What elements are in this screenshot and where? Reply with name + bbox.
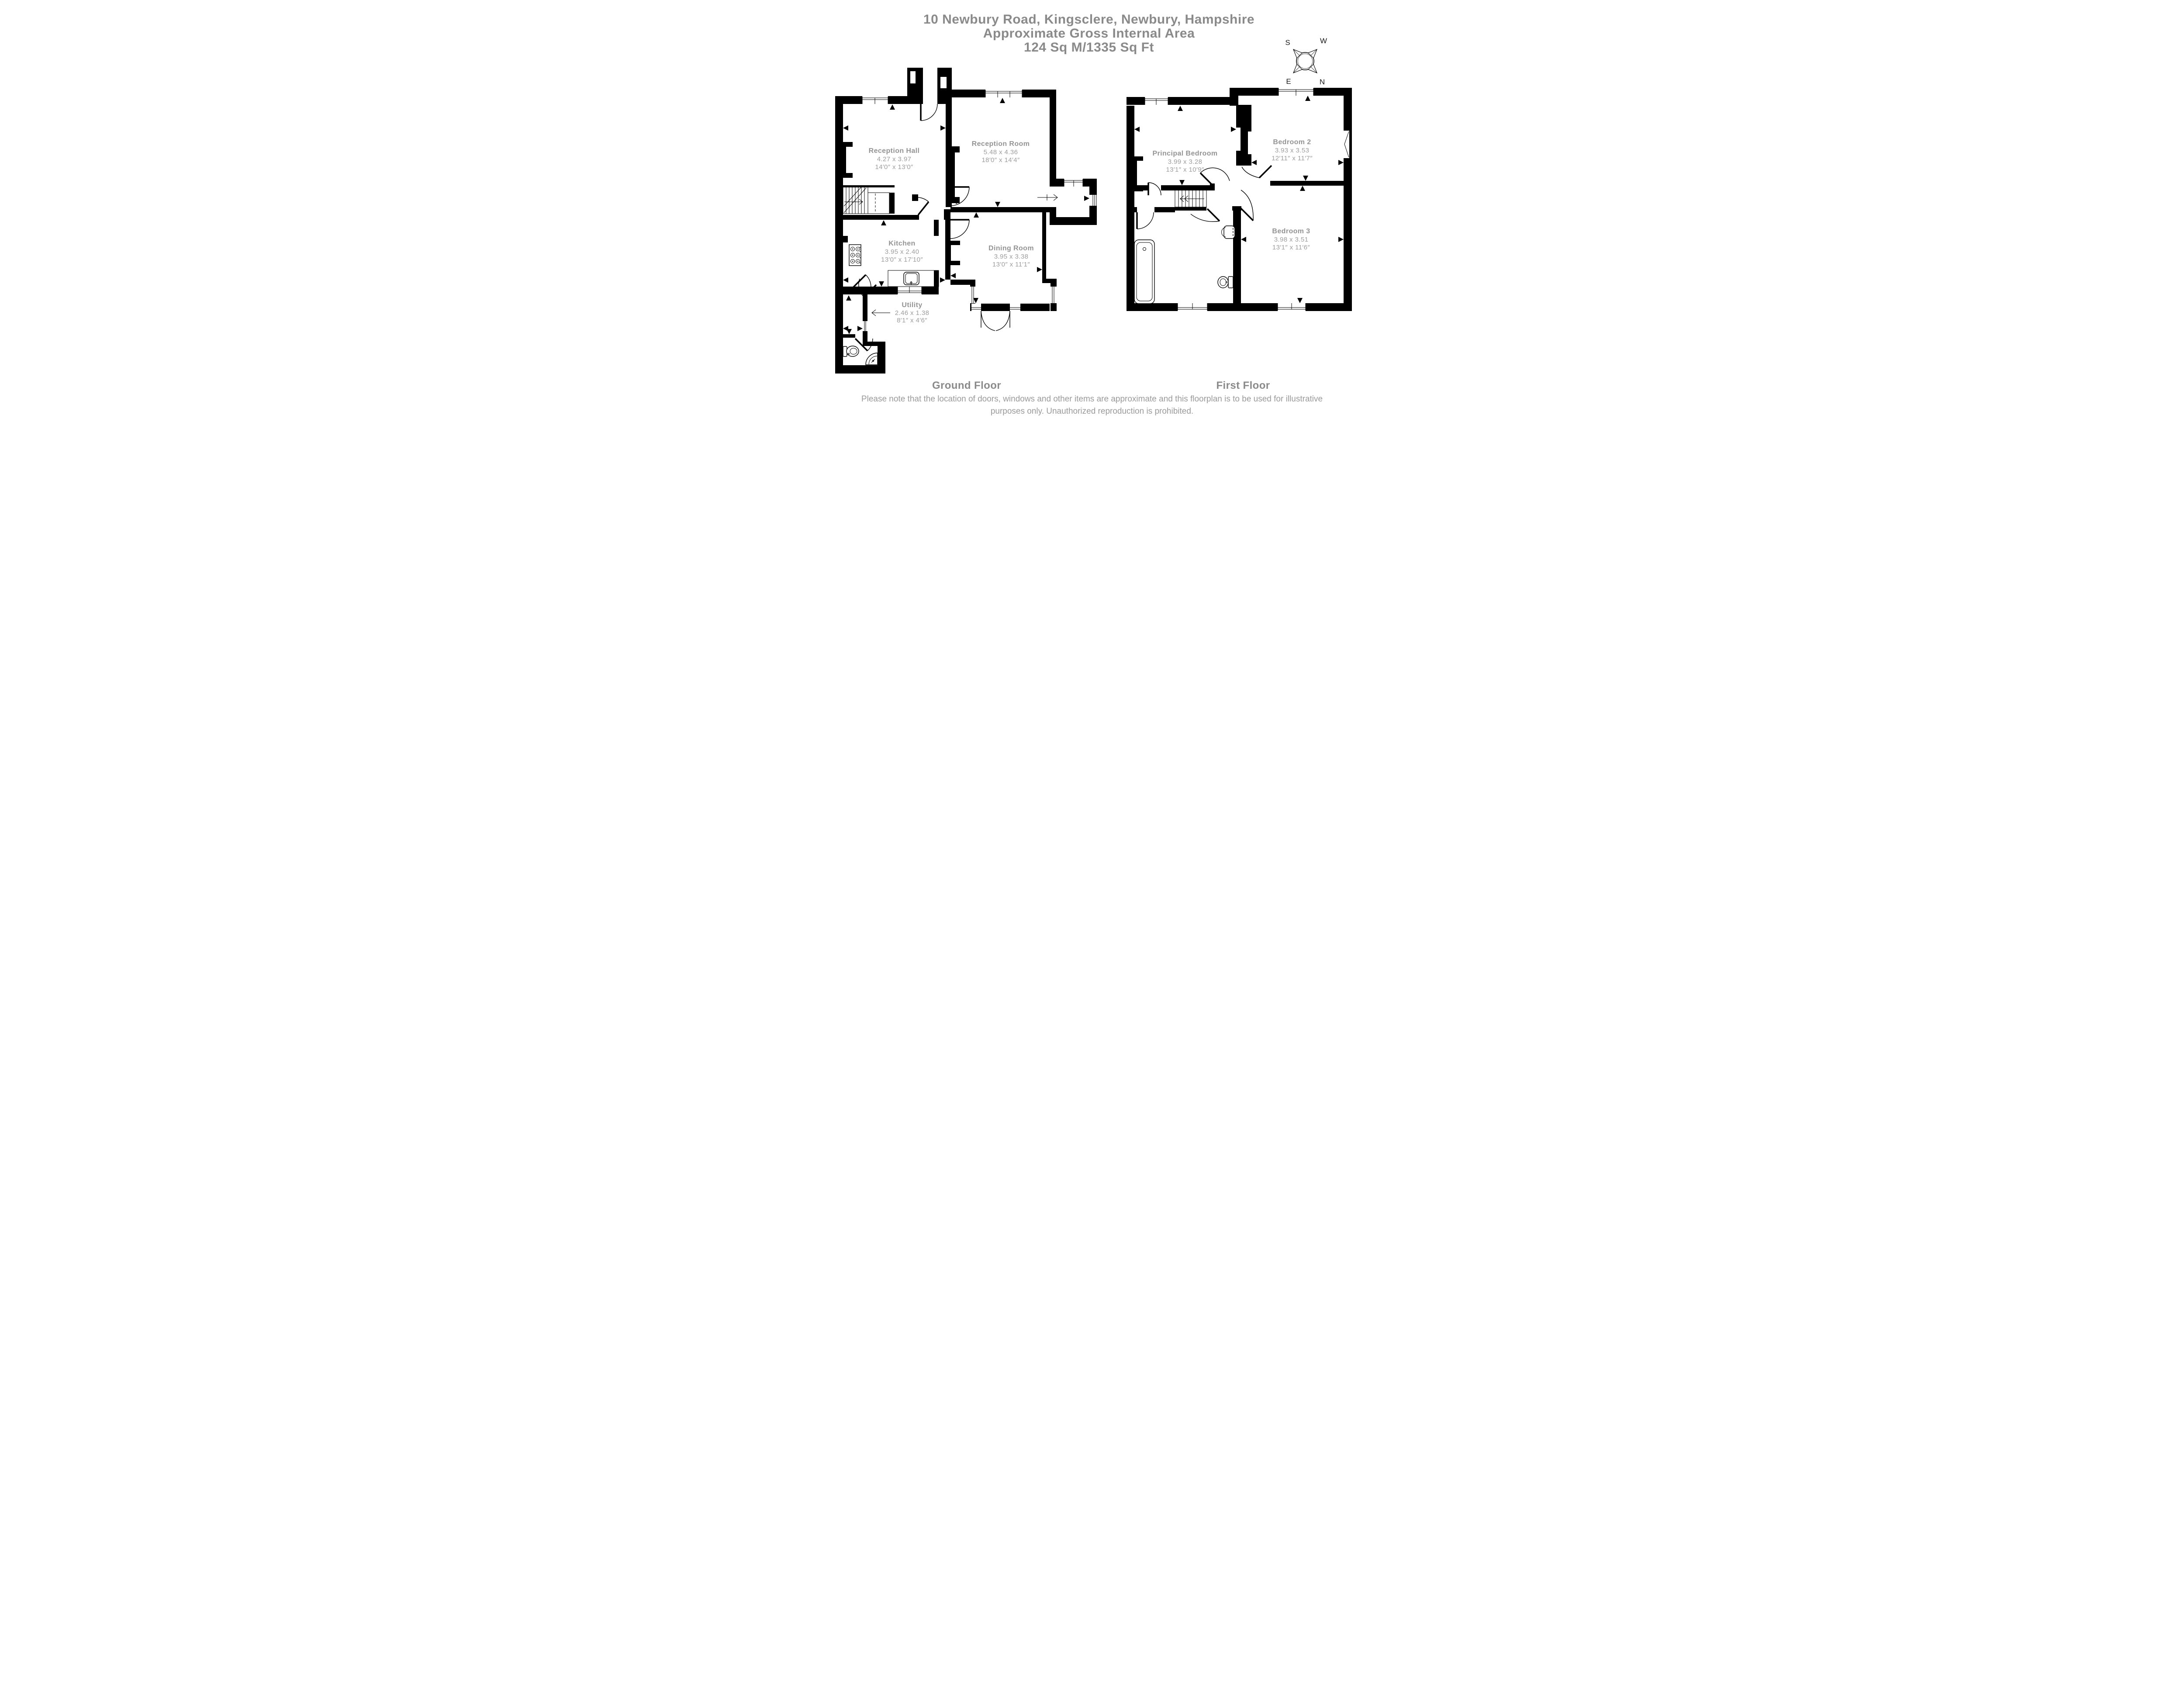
kitchen-sink-icon: [888, 270, 939, 287]
room-metric: 4.27 x 3.97: [877, 156, 912, 163]
door-landing-1: [1200, 168, 1230, 185]
room-reception-hall: Reception Hall 4.27 x 3.97 14′0″ x 13′0″: [869, 147, 920, 171]
room-label: Bedroom 3: [1272, 228, 1310, 235]
room-metric: 3.95 x 2.40: [885, 248, 919, 256]
room-label: Utility: [902, 301, 922, 309]
floorplan-canvas: 10 Newbury Road, Kingsclere, Newbury, Ha…: [819, 0, 1365, 422]
bathtub-icon: [1134, 240, 1154, 304]
stove-icon: [849, 245, 861, 266]
room-metric: 3.99 x 3.28: [1168, 158, 1203, 166]
title-area: 124 Sq M/1335 Sq Ft: [1024, 40, 1154, 55]
ground-floor-plan: Reception Hall 4.27 x 3.97 14′0″ x 13′0″…: [835, 68, 1097, 374]
door-bedroom2: [1242, 166, 1272, 178]
room-utility: Utility 2.46 x 1.38 8′1″ x 4′6″: [895, 301, 930, 324]
window-kitchen-bottom: [898, 287, 922, 294]
room-imperial: 8′1″ x 4′6″: [897, 317, 927, 324]
corner-basin-icon: [866, 353, 878, 365]
window-bay-bottom-left: [971, 304, 981, 311]
cupboard-under-stairs: [868, 193, 889, 214]
disclaimer-line-1: Please note that the location of doors, …: [861, 394, 1323, 404]
door-bathroom: [1137, 212, 1154, 229]
stairs-first-floor-icon: [1175, 190, 1206, 207]
title-subtitle: Approximate Gross Internal Area: [983, 26, 1195, 41]
room-imperial: 13′0″ x 17′10″: [881, 256, 923, 263]
door-landing-2: [1191, 209, 1220, 221]
bathroom-toilet-icon: [1218, 277, 1233, 288]
room-label: Dining Room: [988, 245, 1034, 252]
window-hall-top: [862, 96, 888, 104]
room-bedroom-2: Bedroom 2 3.93 x 3.53 12′11″ x 11′7″: [1272, 138, 1313, 162]
first-floor-label: First Floor: [1216, 380, 1270, 391]
room-metric: 3.98 x 3.51: [1274, 236, 1309, 243]
title-block: 10 Newbury Road, Kingsclere, Newbury, Ha…: [923, 12, 1254, 55]
window-bathroom-bottom: [1178, 303, 1207, 311]
window-bedroom2-top: [1279, 88, 1313, 96]
room-label: Reception Hall: [869, 147, 920, 155]
door-dining-room: [950, 220, 969, 239]
door-bedroom3: [1241, 190, 1253, 221]
toilet-icon: [843, 346, 859, 356]
room-imperial: 13′1″ x 10′9″: [1166, 166, 1204, 173]
window-porch-top: [1064, 179, 1083, 187]
first-floor-plan: Principal Bedroom 3.99 x 3.28 13′1″ x 10…: [1127, 88, 1352, 311]
disclaimer-line-2: purposes only. Unauthorized reproduction…: [991, 407, 1193, 416]
room-imperial: 18′0″ x 14′4″: [981, 156, 1020, 164]
door-principal-bedroom: [1148, 183, 1161, 195]
window-bay-bottom-right: [1010, 304, 1020, 311]
room-imperial: 14′0″ x 13′0″: [875, 163, 913, 171]
room-label: Kitchen: [888, 240, 915, 247]
room-label: Reception Room: [972, 140, 1030, 148]
room-principal-bedroom: Principal Bedroom 3.99 x 3.28 13′1″ x 10…: [1152, 150, 1217, 173]
room-reception-room: Reception Room 5.48 x 4.36 18′0″ x 14′4″: [972, 140, 1030, 164]
room-metric: 5.48 x 4.36: [984, 149, 1018, 156]
room-dining-room: Dining Room 3.95 x 3.38 13′0″ x 11′1″: [988, 245, 1034, 268]
window-bedroom3-bottom: [1278, 303, 1306, 311]
room-metric: 3.93 x 3.53: [1275, 147, 1310, 154]
footer: Ground Floor First Floor Please note tha…: [861, 380, 1323, 416]
room-imperial: 12′11″ x 11′7″: [1272, 155, 1313, 162]
room-label: Principal Bedroom: [1152, 150, 1217, 157]
room-bedroom-3: Bedroom 3 3.98 x 3.51 13′1″ x 11′6″: [1272, 228, 1310, 251]
compass-icon: S W E N: [1285, 37, 1327, 86]
compass-north: N: [1320, 78, 1325, 86]
compass-south: S: [1285, 38, 1290, 47]
room-imperial: 13′0″ x 11′1″: [992, 261, 1030, 268]
utility-arrow: [872, 310, 890, 316]
window-principal-top: [1145, 97, 1168, 105]
compass-east: E: [1286, 77, 1291, 86]
floorplan-page: 10 Newbury Road, Kingsclere, Newbury, Ha…: [819, 0, 1365, 422]
stairs-icon: [843, 187, 868, 214]
entrance-arrow: [1037, 194, 1057, 201]
room-metric: 3.95 x 3.38: [994, 253, 1029, 260]
room-metric: 2.46 x 1.38: [895, 309, 930, 317]
room-imperial: 13′1″ x 11′6″: [1272, 244, 1310, 251]
window-bay-right: [1051, 287, 1057, 303]
title-address: 10 Newbury Road, Kingsclere, Newbury, Ha…: [923, 12, 1254, 27]
window-reception-top: [985, 90, 1022, 97]
entrance-door-porch: [1089, 195, 1097, 206]
door-kitchen: [854, 275, 871, 287]
front-door: [921, 104, 937, 121]
room-label: Bedroom 2: [1273, 138, 1311, 146]
window-utility-right: [863, 321, 867, 331]
ground-floor-label: Ground Floor: [932, 380, 1001, 391]
compass-west: W: [1320, 37, 1327, 45]
french-doors-dining: [981, 311, 1010, 331]
window-bedroom2-right: [1344, 131, 1351, 158]
room-kitchen: Kitchen 3.95 x 2.40 13′0″ x 17′10″: [881, 240, 923, 263]
bathroom-sink-icon: [1222, 226, 1235, 239]
